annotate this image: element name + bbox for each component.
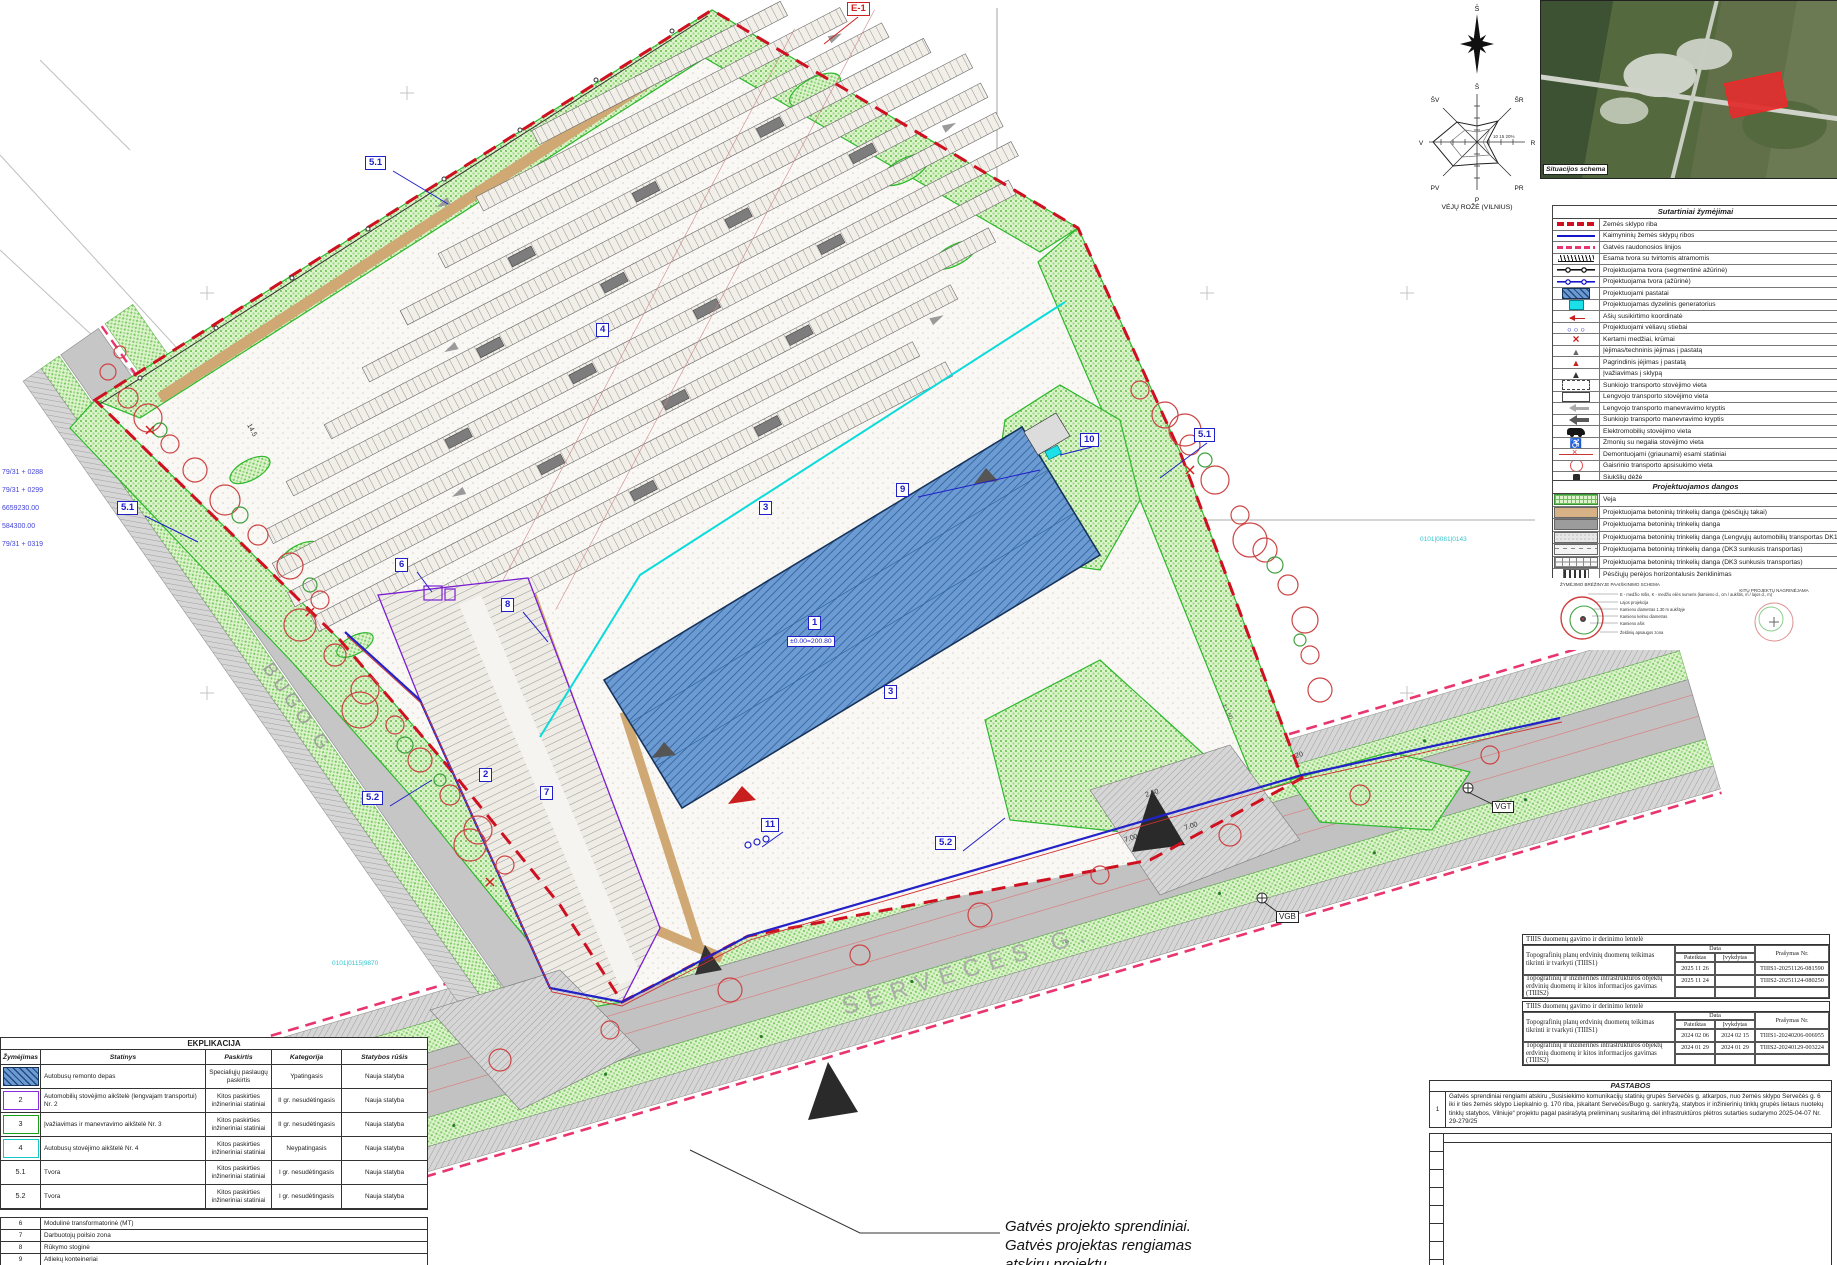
- legend-item-label: Sunkiojo transporto manevravimo kryptis: [1600, 416, 1724, 423]
- legend-symbol-icon: [1559, 450, 1593, 458]
- legend-item: Įėjimas/techninis įėjimas į pastatą: [1553, 346, 1837, 358]
- item-text: Darbuotojų poilsio zona: [41, 1230, 427, 1241]
- note-number: 1: [1430, 1092, 1446, 1127]
- item-number: 9: [1, 1254, 41, 1265]
- note-text: Gatvės sprendiniai rengiami atskiru „Sus…: [1446, 1092, 1831, 1127]
- surface-item-label: Projektuojama betoninių trinkelių danga …: [1600, 559, 1803, 566]
- label-zone-1: 1: [808, 616, 821, 630]
- item-number: 8: [1, 1242, 41, 1253]
- legend-symbol-icon: [1566, 312, 1586, 321]
- legend-symbol-icon: [1562, 288, 1590, 299]
- svg-text:P: P: [1475, 197, 1479, 204]
- label-e1: E-1: [847, 2, 870, 16]
- title-block: [1429, 1133, 1832, 1265]
- item-text: Modulinė transformatorinė (MT): [41, 1218, 427, 1229]
- row-symbol-swatch: 5.1: [4, 1164, 38, 1181]
- situation-map-label: Situacijos schema: [1543, 164, 1608, 175]
- legend-item: Kertami medžiai, krūmai: [1553, 334, 1837, 346]
- surface-item: Projektuojama betoninių trinkelių danga …: [1553, 557, 1837, 570]
- svg-text:584300.00: 584300.00: [2, 523, 35, 530]
- svg-text:10 15 20%: 10 15 20%: [1493, 134, 1515, 139]
- surface-item-label: Projektuojama betoninių trinkelių danga: [1600, 521, 1720, 528]
- explication-row: 5.1 Tvora Kitos paskirties inžineriniai …: [1, 1161, 427, 1185]
- label-vgb: VGB: [1276, 911, 1299, 923]
- label-item-11: 11: [761, 818, 779, 832]
- title-block-divider: [1443, 1142, 1831, 1143]
- construction-type: Nauja statyba: [342, 1065, 427, 1089]
- tiiis-table-title: TIIIS duomenų gavimo ir derinimo lentelė: [1522, 1001, 1830, 1012]
- surface-swatch: [1554, 557, 1598, 568]
- item-number: 7: [1, 1230, 41, 1241]
- legend-symbol-icon: [1557, 246, 1595, 250]
- legend-item: Žemės sklypo riba: [1553, 219, 1837, 231]
- legend-item-label: Ašių susikirtimo koordinatė: [1600, 313, 1683, 320]
- legend-item: Įvažiavimas į sklypą: [1553, 369, 1837, 381]
- legend-symbol-icon: [1557, 278, 1595, 286]
- legend-symbol-icon: [1571, 369, 1581, 381]
- row-symbol-swatch: 3: [3, 1115, 39, 1134]
- item-text: Rūkymo stoginė: [41, 1242, 427, 1253]
- label-item-6: 6: [395, 558, 408, 572]
- wind-rose-caption: VĖJŲ ROŽĖ (VILNIUS): [1442, 202, 1513, 211]
- svg-text:V: V: [1419, 140, 1424, 147]
- label-fence-51: 5.1: [365, 156, 386, 170]
- legend-item-label: Demontuojami (griaunami) esami statiniai: [1600, 451, 1726, 458]
- legend-item-label: Projektuojamas dyzelinis generatorius: [1600, 301, 1716, 308]
- construction-type: Nauja statyba: [342, 1089, 427, 1113]
- title-block-left-column: [1430, 1134, 1444, 1265]
- legend-symbol-icon: [1562, 380, 1590, 390]
- explication-extra-row: 9 Atliekų konteineriai: [1, 1254, 427, 1265]
- surface-item: Projektuojama betoninių trinkelių danga …: [1553, 544, 1837, 557]
- row-symbol-swatch: 5.2: [4, 1188, 38, 1205]
- legend-item: Lengvojo transporto manevravimo kryptis: [1553, 403, 1837, 415]
- legend-item-label: Projektuojami pastatai: [1600, 290, 1669, 297]
- explication-header-row: Žymėjimas Statinys Paskirtis Kategorija …: [1, 1050, 427, 1065]
- legend-item-label: Elektromobilių stovėjimo vieta: [1600, 428, 1691, 435]
- legend-item: Gaisrinio transporto apsisukimo vieta: [1553, 461, 1837, 473]
- surface-item-label: Veja: [1600, 496, 1616, 503]
- item-text: Atliekų konteineriai: [41, 1254, 427, 1265]
- explication-row: 5.2 Tvora Kitos paskirties inžineriniai …: [1, 1185, 427, 1209]
- item-number: 6: [1, 1218, 41, 1229]
- legend-item: Ašių susikirtimo koordinatė: [1553, 311, 1837, 323]
- legend-symbol-icon: [1562, 392, 1590, 402]
- legend-item-label: Projektuojama tvora (segmentinė ažūrinė): [1600, 267, 1727, 274]
- legend-item-label: Projektuojama tvora (ažūrinė): [1600, 278, 1691, 285]
- legend-item-label: Įėjimas/techninis įėjimas į pastatą: [1600, 347, 1702, 354]
- svg-text:0101|0081|0143: 0101|0081|0143: [1420, 536, 1467, 543]
- legend-symbol-icon: [1557, 266, 1595, 274]
- legend-item-label: Projektuojami vėliavų stiebai: [1600, 324, 1687, 331]
- svg-text:0101|0115|9870: 0101|0115|9870: [332, 960, 379, 967]
- svg-text:Kamieno ašis: Kamieno ašis: [1620, 621, 1645, 626]
- construction-type: Nauja statyba: [342, 1137, 427, 1161]
- legend-symbol-icon: [1558, 255, 1594, 262]
- edge-coordinate-labels: 79/31 + 0288 79/31 + 0299 6659230.00 584…: [2, 469, 43, 548]
- legend-item-label: Sunkiojo transporto stovėjimo vieta: [1600, 382, 1707, 389]
- legend-list: Žemės sklypo riba Kaimyninių žemės sklyp…: [1553, 219, 1837, 506]
- tiiis-table-title: TIIIS duomenų gavimo ir derinimo lentelė: [1522, 934, 1830, 945]
- explication-extra-row: 6 Modulinė transformatorinė (MT): [1, 1218, 427, 1230]
- svg-text:79/31 + 0319: 79/31 + 0319: [2, 541, 43, 548]
- notes-block: PASTABOS 1 Gatvės sprendiniai rengiami a…: [1429, 1080, 1832, 1128]
- wind-rose-chart: Š ŠR R PR P PV V ŠV 10 15 20%: [1419, 82, 1536, 204]
- surface-swatch: [1554, 494, 1598, 505]
- explication-title: EKPLIKACIJA: [1, 1038, 427, 1050]
- legend-symbol-icon: [1563, 415, 1589, 425]
- surface-item-label: Projektuojama betoninių trinkelių danga …: [1600, 546, 1803, 553]
- explication-extra-row: 7 Darbuotojų poilsio zona: [1, 1230, 427, 1242]
- legend-symbol-icon: [1572, 334, 1579, 346]
- explication-extra-table: 6 Modulinė transformatorinė (MT) 7 Darbu…: [0, 1217, 428, 1265]
- construction-type: Nauja statyba: [342, 1161, 427, 1185]
- legend-symbol-icon: [1567, 428, 1585, 435]
- legend-item-label: Esama tvora su tvirtomis atramomis: [1600, 255, 1709, 262]
- schema-left-title: ŽYMĖJIMO BRĖŽINYJE PAAIŠKINIMO SCHEMA: [1560, 580, 1660, 587]
- north-star-icon: [1459, 14, 1496, 74]
- legend-symbol-icon: [1570, 438, 1582, 450]
- legend-symbol-icon: [1572, 357, 1581, 369]
- legend-title: Sutartiniai žymėjimai: [1553, 206, 1837, 219]
- legend-item-label: Lengvojo transporto stovėjimo vieta: [1600, 393, 1708, 400]
- legend-item-label: Gaisrinio transporto apsisukimo vieta: [1600, 462, 1713, 469]
- label-fence-51c: 5.1: [1194, 428, 1215, 442]
- schema-right-title: KITŲ PROJEKTŲ NAGRINĖJAMA: [1739, 587, 1808, 593]
- label-item-7: 7: [540, 786, 553, 800]
- purpose: Kitos paskirties inžineriniai statiniai: [206, 1185, 272, 1209]
- explication-row: 4 Autobusų stovėjimo aikštelė Nr. 4 Kito…: [1, 1137, 427, 1161]
- legend-item-label: Įvažiavimas į sklypą: [1600, 370, 1662, 377]
- category: I gr. nesudėtingasis: [272, 1161, 342, 1185]
- surface-item-label: Projektuojama betoninių trinkelių danga …: [1600, 509, 1767, 516]
- note-leader: [690, 1150, 1000, 1233]
- category: II gr. nesudėtingasis: [272, 1089, 342, 1113]
- label-item-9: 9: [896, 483, 909, 497]
- surface-item: Projektuojama betoninių trinkelių danga …: [1553, 532, 1837, 545]
- legend-item: Kaimyninių žemės sklypų ribos: [1553, 231, 1837, 243]
- structure-name: Tvora: [41, 1161, 206, 1185]
- purpose: Kitos paskirties inžineriniai statiniai: [206, 1089, 272, 1113]
- note-row: 1 Gatvės sprendiniai rengiami atskiru „S…: [1430, 1092, 1831, 1127]
- svg-text:Kamieno diametras 1.30 m aukšt: Kamieno diametras 1.30 m aukštyje: [1620, 607, 1686, 612]
- street-project-note: Gatvės projekto sprendiniai. Gatvės proj…: [1005, 1218, 1245, 1265]
- legend-item: Žmonių su negalia stovėjimo vieta: [1553, 438, 1837, 450]
- explication-tables: EKPLIKACIJA Žymėjimas Statinys Paskirtis…: [0, 1037, 428, 1265]
- other-projects-schema: [1755, 603, 1793, 641]
- purpose: Kitos paskirties inžineriniai statiniai: [206, 1137, 272, 1161]
- legend-item-label: Lengvojo transporto manevravimo kryptis: [1600, 405, 1725, 412]
- row-symbol-swatch: [3, 1067, 39, 1086]
- surface-item: Veja: [1553, 494, 1837, 507]
- category: II gr. nesudėtingasis: [272, 1113, 342, 1137]
- svg-text:PR: PR: [1514, 185, 1523, 192]
- surface-swatch: [1554, 532, 1598, 543]
- legend-item: Sunkiojo transporto stovėjimo vieta: [1553, 380, 1837, 392]
- surface-item-label: Projektuojama betoninių trinkelių danga …: [1600, 534, 1837, 541]
- surface-item: Projektuojama betoninių trinkelių danga …: [1553, 507, 1837, 520]
- svg-text:79/31 + 0299: 79/31 + 0299: [2, 487, 43, 494]
- explication-main-table: EKPLIKACIJA Žymėjimas Statinys Paskirtis…: [0, 1037, 428, 1210]
- row-symbol-swatch: 2: [3, 1091, 39, 1110]
- purpose: Kitos paskirties inžineriniai statiniai: [206, 1161, 272, 1185]
- svg-text:Š: Š: [1475, 82, 1480, 91]
- legend-item: Demontuojami (griaunami) esami statiniai: [1553, 449, 1837, 461]
- explication-extra-row: 8 Rūkymo stoginė: [1, 1242, 427, 1254]
- site-entrance-icon: [808, 1062, 858, 1120]
- category: Ypatingasis: [272, 1065, 342, 1089]
- label-fence-52: 5.2: [362, 791, 383, 805]
- tiiis-table-1: Topografinių planų erdvinių duomenų teik…: [1522, 945, 1830, 999]
- explication-rows: Autobusų remonto depas Specialiųjų pasla…: [1, 1065, 427, 1209]
- legend-symbol-icon: [1572, 346, 1581, 358]
- legend-item: Esama tvora su tvirtomis atramomis: [1553, 254, 1837, 266]
- explanation-schemas: ŽYMĖJIMO BRĖŽINYJE PAAIŠKINIMO SCHEMA E …: [1552, 578, 1837, 650]
- legend-item: Gatvės raudonosios linijos: [1553, 242, 1837, 254]
- legend-symbol-icon: [1569, 300, 1584, 310]
- surfaces-list: Veja Projektuojama betoninių trinkelių d…: [1553, 494, 1837, 581]
- legend-item: Projektuojami pastatai: [1553, 288, 1837, 300]
- legend-symbol-icon: [1570, 461, 1583, 473]
- situation-map: Situacijos schema: [1540, 0, 1837, 179]
- surfaces-title: Projektuojamos dangos: [1553, 481, 1837, 494]
- label-zone-3: 3: [759, 501, 772, 515]
- construction-type: Nauja statyba: [342, 1113, 427, 1137]
- svg-text:R: R: [1531, 140, 1536, 147]
- tiiis-tables: TIIIS duomenų gavimo ir derinimo lentelė…: [1522, 934, 1830, 1066]
- label-item-8: 8: [501, 598, 514, 612]
- surface-swatch: [1554, 507, 1598, 518]
- label-elevation: ±0.00=200.80: [787, 636, 835, 647]
- legend-item-label: Kertami medžiai, krūmai: [1600, 336, 1675, 343]
- surface-swatch: [1554, 544, 1598, 555]
- legend-item-label: Žmonių su negalia stovėjimo vieta: [1600, 439, 1704, 446]
- structure-name: Autobusų remonto depas: [41, 1065, 206, 1089]
- legend-symbol-icon: [1563, 404, 1589, 412]
- explication-row: 3 Įvažiavimas ir manevravimo aikštelė Nr…: [1, 1113, 427, 1137]
- label-zone-4: 4: [596, 323, 609, 337]
- label-zone-3b: 3: [884, 685, 897, 699]
- construction-type: Nauja statyba: [342, 1185, 427, 1209]
- structure-name: Autobusų stovėjimo aikštelė Nr. 4: [41, 1137, 206, 1161]
- legend-item-label: Žemės sklypo riba: [1600, 221, 1657, 228]
- legend-item-label: Pagrindinis įėjimas į pastatą: [1600, 359, 1686, 366]
- explication-row: 2 Automobilių stovėjimo aikštelė (lengva…: [1, 1089, 427, 1113]
- legend-item: Lengvojo transporto stovėjimo vieta: [1553, 392, 1837, 404]
- legend-item: Projektuojama tvora (segmentinė ažūrinė): [1553, 265, 1837, 277]
- surface-swatch: [1554, 519, 1598, 530]
- tiiis-table-2: Topografinių planų erdvinių duomenų teik…: [1522, 1012, 1830, 1066]
- surface-item: Projektuojama betoninių trinkelių danga: [1553, 519, 1837, 532]
- label-fence-51b: 5.1: [117, 501, 138, 515]
- legend-symbol-icon: [1567, 323, 1585, 335]
- row-symbol-swatch: 4: [3, 1139, 39, 1158]
- svg-text:79/31 + 0288: 79/31 + 0288: [2, 469, 43, 476]
- legend-item: Projektuojami vėliavų stiebai: [1553, 323, 1837, 335]
- surfaces-legend: Projektuojamos dangos Veja Projektuojama…: [1552, 480, 1837, 582]
- purpose: Kitos paskirties inžineriniai statiniai: [206, 1113, 272, 1137]
- legend-symbol-icon: [1557, 222, 1595, 226]
- label-fence-52b: 5.2: [935, 836, 956, 850]
- svg-text:Lajos projekcija: Lajos projekcija: [1620, 600, 1649, 605]
- svg-text:PV: PV: [1431, 185, 1440, 192]
- explication-row: Autobusų remonto depas Specialiųjų pasla…: [1, 1065, 427, 1089]
- svg-text:6659230.00: 6659230.00: [2, 505, 39, 512]
- legend-symbol-icon: [1557, 235, 1595, 238]
- label-item-10: 10: [1080, 433, 1099, 447]
- legend-symbols: Sutartiniai žymėjimai Žemės sklypo riba …: [1552, 205, 1837, 507]
- svg-text:ŠV: ŠV: [1431, 95, 1440, 104]
- legend-item: Pagrindinis įėjimas į pastatą: [1553, 357, 1837, 369]
- category: Neypatingasis: [272, 1137, 342, 1161]
- svg-text:ŠR: ŠR: [1514, 95, 1523, 104]
- svg-text:Kamieno kelmo diametras: Kamieno kelmo diametras: [1620, 614, 1667, 619]
- map-road: [1663, 0, 1723, 179]
- legend-item-label: Kaimyninių žemės sklypų ribos: [1600, 232, 1694, 239]
- label-vgt: VGT: [1492, 801, 1514, 813]
- category: I gr. nesudėtingasis: [272, 1185, 342, 1209]
- label-zone-2: 2: [479, 768, 492, 782]
- tree-marking-schema: E - medžio rūšis, K - medžio eilės numer…: [1561, 592, 1773, 639]
- svg-text:Š: Š: [1475, 4, 1480, 13]
- legend-item: Elektromobilių stovėjimo vieta: [1553, 426, 1837, 438]
- structure-name: Įvažiavimas ir manevravimo aikštelė Nr. …: [41, 1113, 206, 1137]
- structure-name: Tvora: [41, 1185, 206, 1209]
- purpose: Specialiųjų paslaugų paskirtis: [206, 1065, 272, 1089]
- legend-item: Projektuojamas dyzelinis generatorius: [1553, 300, 1837, 312]
- legend-item: Sunkiojo transporto manevravimo kryptis: [1553, 415, 1837, 427]
- site-plan-drawing: { "drawing": { "labels": { "e1": "E-1", …: [0, 0, 1837, 1265]
- structure-name: Automobilių stovėjimo aikštelė (lengvaja…: [41, 1089, 206, 1113]
- notes-title: PASTABOS: [1430, 1081, 1831, 1092]
- svg-text:Želdinių apsaugos zona: Želdinių apsaugos zona: [1620, 630, 1664, 635]
- legend-item-label: Gatvės raudonosios linijos: [1600, 244, 1681, 251]
- legend-item: Projektuojama tvora (ažūrinė): [1553, 277, 1837, 289]
